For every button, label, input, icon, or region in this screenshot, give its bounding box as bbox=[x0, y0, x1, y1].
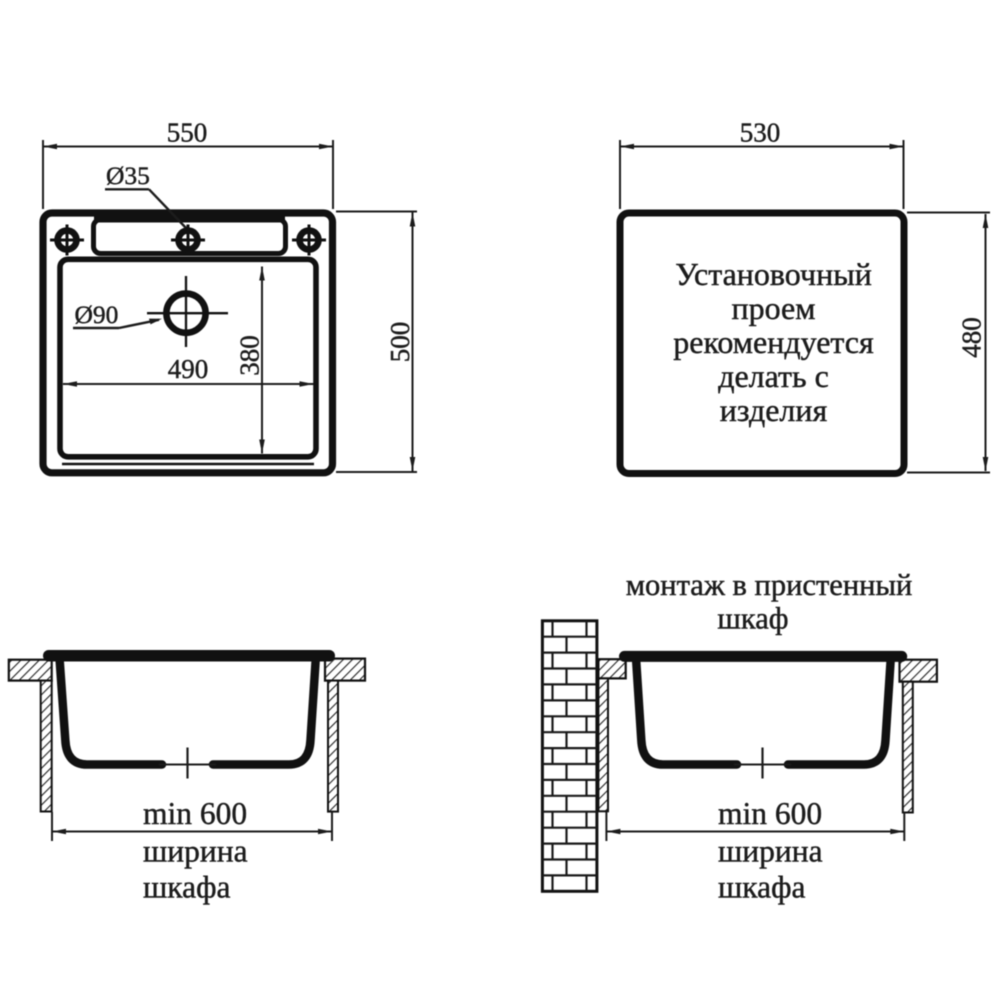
svg-text:ширина: ширина bbox=[718, 834, 823, 869]
svg-text:Установочный: Установочный bbox=[675, 256, 872, 292]
svg-text:шкафа: шкафа bbox=[143, 870, 230, 905]
svg-text:шкафа: шкафа bbox=[718, 870, 805, 905]
svg-text:550: 550 bbox=[167, 118, 208, 148]
svg-text:380: 380 bbox=[235, 335, 265, 376]
svg-text:530: 530 bbox=[740, 118, 781, 148]
svg-text:Ø90: Ø90 bbox=[75, 300, 119, 329]
svg-text:шкаф: шкаф bbox=[717, 602, 788, 636]
svg-text:Ø35: Ø35 bbox=[106, 161, 150, 190]
svg-text:проем: проем bbox=[732, 290, 816, 326]
svg-text:делать с: делать с bbox=[718, 358, 829, 394]
svg-text:min 600: min 600 bbox=[143, 796, 247, 831]
svg-text:min 600: min 600 bbox=[718, 796, 822, 831]
svg-text:490: 490 bbox=[168, 354, 209, 384]
svg-text:изделия: изделия bbox=[720, 392, 828, 428]
svg-text:монтаж в пристенный: монтаж в пристенный bbox=[626, 568, 913, 602]
svg-text:рекомендуется: рекомендуется bbox=[673, 324, 874, 360]
svg-text:480: 480 bbox=[957, 317, 987, 358]
svg-text:500: 500 bbox=[385, 322, 415, 363]
svg-text:ширина: ширина bbox=[143, 834, 248, 869]
